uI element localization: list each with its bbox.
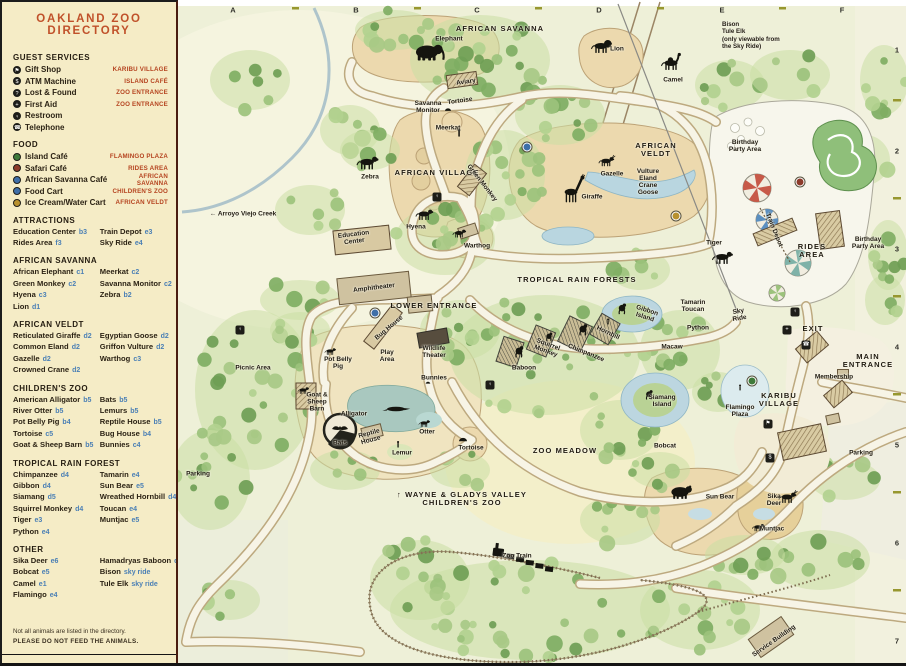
grid-ref: b2	[123, 292, 131, 299]
animal-entry: Pythone4	[13, 527, 100, 538]
animal-grid: Reticulated Giraffed2Egyptian Goosed2Com…	[13, 331, 168, 377]
animal-entry: Batsb5	[100, 395, 168, 406]
section-heading: TROPICAL RAIN FOREST	[13, 459, 168, 468]
animal-name: Hamadryas Baboon	[100, 556, 171, 565]
animal-name: Wreathed Hornbill	[100, 492, 165, 501]
grid-ref: e4	[132, 472, 140, 479]
section-african-veldt: AFRICAN VELDTReticulated Giraffed2Egypti…	[13, 320, 168, 377]
animal-name: Meerkat	[100, 267, 129, 276]
service-location: CHILDREN'S ZOO	[113, 188, 169, 195]
animal-name: Bison	[100, 567, 121, 576]
animal-name: Muntjac	[100, 515, 129, 524]
animal-entry: Green Monkeyc2	[13, 279, 100, 290]
grid-ref: c2	[68, 281, 76, 288]
grid-ref: d2	[84, 333, 92, 340]
animal-entry: Flamingoe4	[13, 590, 100, 601]
animal-entry: Bobcate5	[13, 567, 100, 578]
service-label: Telephone	[25, 123, 64, 132]
animal-entry: American Alligatorb5	[13, 395, 100, 406]
grid-ref: d4	[168, 494, 176, 501]
animal-name: Griffon Vulture	[100, 342, 153, 351]
service-location: ISLAND CAFÉ	[124, 78, 168, 85]
logo-block: CONSERVATION & EDUCATION OAKLAND ZOO	[2, 655, 176, 663]
animal-name: Camel	[13, 579, 36, 588]
animal-entry: Reticulated Giraffed2	[13, 331, 100, 342]
service-location: FLAMINGO PLAZA	[110, 153, 168, 160]
stage	[407, 295, 433, 313]
animal-name: Tamarin	[100, 470, 129, 479]
section-heading: FOOD	[13, 140, 168, 149]
section-children-s-zoo: CHILDREN'S ZOOAmerican Alligatorb5Batsb5…	[13, 384, 168, 452]
food-cart-icon	[13, 187, 21, 195]
animal-name: Bunnies	[100, 440, 130, 449]
section-food: FOODIsland CaféFLAMINGO PLAZASafari Café…	[13, 140, 168, 209]
grid-ref: d2	[43, 356, 51, 363]
animal-name: Zebra	[100, 290, 121, 299]
service-label: Gift Shop	[25, 65, 61, 74]
animal-name: Goat & Sheep Barn	[13, 440, 82, 449]
animal-name: Tule Elk	[100, 579, 129, 588]
animal-entry: Camele1	[13, 579, 100, 590]
directory-note: Not all animals are listed in the direct…	[13, 628, 166, 635]
animal-grid: Education Centerb3Train Depote3Rides Are…	[13, 227, 168, 250]
grid-ref: c3	[133, 356, 141, 363]
grid-ref: d4	[75, 506, 83, 513]
grid-ref: d2	[72, 367, 80, 374]
animal-entry: Lemursb5	[100, 406, 168, 417]
animal-entry: Train Depote3	[100, 227, 168, 238]
service-label: African Savanna Café	[25, 175, 107, 184]
animal-name: Rides Area	[13, 238, 52, 247]
animal-name: Savanna Monitor	[100, 279, 161, 288]
animal-name: Lemurs	[100, 406, 127, 415]
service-row: Food CartCHILDREN'S ZOO	[13, 186, 168, 198]
section-tropical-rain-forest: TROPICAL RAIN FORESTChimpanzeed4Tamarine…	[13, 459, 168, 538]
grid-ref: b5	[130, 408, 138, 415]
section-heading: AFRICAN VELDT	[13, 320, 168, 329]
grid-ref: b5	[119, 397, 127, 404]
animal-entry: Bisonsky ride	[100, 567, 168, 578]
service-row: ?Lost & FoundZOO ENTRANCE	[13, 87, 168, 99]
animal-name: Egyptian Goose	[100, 331, 158, 340]
animal-entry: Squirrel Monkeyd4	[13, 504, 100, 515]
animal-entry: Muntjace5	[100, 515, 168, 526]
goat-sheep-barn	[296, 383, 316, 409]
grid-ref: d4	[43, 483, 51, 490]
flamingo-pond	[721, 365, 769, 417]
animal-name: African Elephant	[13, 267, 73, 276]
service-row: Island CaféFLAMINGO PLAZA	[13, 151, 168, 163]
grid-ref: sky ride	[131, 581, 157, 588]
service-label: Ice Cream/Water Cart	[25, 198, 106, 207]
service-label: ATM Machine	[25, 77, 76, 86]
animal-grid: Chimpanzeed4Tamarine4Gibbond4Sun Beare5S…	[13, 470, 168, 538]
animal-name: Bobcat	[13, 567, 39, 576]
atm-icon: $	[13, 77, 21, 85]
animal-entry: Reptile Houseb5	[100, 417, 168, 428]
animal-name: Green Monkey	[13, 279, 65, 288]
service-row: African Savanna CaféAFRICAN SAVANNA	[13, 174, 168, 186]
animal-entry: Savanna Monitorc2	[100, 279, 168, 290]
membership-building	[838, 370, 849, 379]
animal-name: Toucan	[100, 504, 126, 513]
animal-entry: Crowned Craned2	[13, 365, 100, 376]
service-row: ⚑Gift ShopKARIBU VILLAGE	[13, 64, 168, 76]
grid-ref: d2	[156, 344, 164, 351]
animal-entry: African Elephantc1	[13, 267, 100, 278]
animal-name: Reptile House	[100, 417, 151, 426]
animal-name: Warthog	[100, 354, 131, 363]
animal-entry: Common Elandd2	[13, 342, 100, 353]
grid-ref: c2	[164, 281, 172, 288]
animal-entry: Rides Areaf3	[13, 238, 100, 249]
animal-entry	[100, 527, 168, 538]
service-row: ♀Restroom	[13, 110, 168, 122]
grid-ref: c2	[132, 269, 140, 276]
grid-ref: e3	[145, 229, 153, 236]
grid-ref: e4	[129, 506, 137, 513]
animal-entry: Gazelled2	[13, 354, 100, 365]
service-label: Food Cart	[25, 187, 63, 196]
animal-entry: Sika Deere6	[13, 556, 100, 567]
grid-ref: b4	[62, 419, 70, 426]
grid-ref: b5	[55, 408, 63, 415]
service-location: ZOO ENTRANCE	[116, 89, 168, 96]
section-heading: AFRICAN SAVANNA	[13, 256, 168, 265]
animal-entry: Siamangd5	[13, 492, 100, 503]
animal-entry	[100, 590, 168, 601]
animal-name: Gazelle	[13, 354, 40, 363]
animal-name: Bats	[100, 395, 116, 404]
service-location: RIDES AREA	[128, 165, 168, 172]
service-location: AFRICAN VELDT	[116, 199, 168, 206]
animal-entry: Tamarine4	[100, 470, 168, 481]
animal-name: Lion	[13, 302, 29, 311]
animal-name: Tiger	[13, 515, 31, 524]
grid-ref: d5	[48, 494, 56, 501]
african-savanna-cafe-icon	[13, 176, 21, 184]
directory-panel: OAKLAND ZOO DIRECTORY GUEST SERVICES⚑Gif…	[0, 0, 178, 663]
grid-ref: b4	[143, 431, 151, 438]
animal-name: Bug House	[100, 429, 140, 438]
grid-ref: e3	[34, 517, 42, 524]
service-row: +First AidZOO ENTRANCE	[13, 99, 168, 111]
service-location: KARIBU VILLAGE	[113, 66, 168, 73]
telephone-icon: ☎	[13, 123, 21, 131]
animal-name: Pot Belly Pig	[13, 417, 59, 426]
animal-entry: Chimpanzeed4	[13, 470, 100, 481]
animal-entry: Toucane4	[100, 504, 168, 515]
grid-ref: c5	[45, 431, 53, 438]
restroom-icon: ♀	[13, 112, 21, 120]
section-african-savanna: AFRICAN SAVANNAAfrican Elephantc1Meerkat…	[13, 256, 168, 313]
grid-ref: b5	[153, 419, 161, 426]
service-location: ZOO ENTRANCE	[116, 101, 168, 108]
grid-ref: c3	[39, 292, 47, 299]
directory-sections: GUEST SERVICES⚑Gift ShopKARIBU VILLAGE$A…	[2, 44, 176, 602]
section-guest-services: GUEST SERVICES⚑Gift ShopKARIBU VILLAGE$A…	[13, 53, 168, 133]
animal-grid: Sika Deere6Hamadryas Baboonc4Bobcate5Bis…	[13, 556, 168, 602]
animal-entry: Hyenac3	[13, 290, 100, 301]
animal-name: Reticulated Giraffe	[13, 331, 81, 340]
service-row: $ATM MachineISLAND CAFÉ	[13, 76, 168, 88]
animal-name: Flamingo	[13, 590, 47, 599]
animal-name: Sun Bear	[100, 481, 133, 490]
section-heading: ATTRACTIONS	[13, 216, 168, 225]
grid-ref: sky ride	[124, 569, 150, 576]
animal-entry: Warthogc3	[100, 354, 168, 365]
animal-entry: Pot Belly Pigb4	[13, 417, 100, 428]
animal-entry: River Otterb5	[13, 406, 100, 417]
logo-tagline: CONSERVATION & EDUCATION	[13, 661, 166, 663]
animal-entry	[100, 302, 168, 313]
grid-ref: e1	[39, 581, 47, 588]
service-row: Ice Cream/Water CartAFRICAN VELDT	[13, 197, 168, 209]
service-label: First Aid	[25, 100, 57, 109]
animal-name: Crowned Crane	[13, 365, 69, 374]
ice-cream-cart-icon	[13, 199, 21, 207]
grid-ref: e5	[136, 483, 144, 490]
animal-entry: Bunniesc4	[100, 440, 168, 451]
animal-name: Siamang	[13, 492, 45, 501]
grid-ref: c4	[174, 558, 178, 565]
animal-name: Education Center	[13, 227, 76, 236]
directory-warning: PLEASE DO NOT FEED THE ANIMALS.	[13, 638, 166, 645]
service-label: Lost & Found	[25, 88, 77, 97]
animal-entry: Egyptian Goosed2	[100, 331, 168, 342]
grid-ref: b5	[85, 442, 93, 449]
section-other: OTHERSika Deere6Hamadryas Baboonc4Bobcat…	[13, 545, 168, 602]
animal-entry: Hamadryas Baboonc4	[100, 556, 168, 567]
grid-ref: b3	[79, 229, 87, 236]
animal-name: Sky Ride	[100, 238, 132, 247]
animal-grid: American Alligatorb5Batsb5River Otterb5L…	[13, 395, 168, 452]
animal-name: Sika Deer	[13, 556, 48, 565]
animal-name: Train Depot	[100, 227, 142, 236]
grid-ref: e4	[42, 529, 50, 536]
grid-ref: c1	[76, 269, 84, 276]
animal-name: Hyena	[13, 290, 36, 299]
gift-shop-icon: ⚑	[13, 66, 21, 74]
animal-name: Python	[13, 527, 39, 536]
animal-entry: Zebrab2	[100, 290, 168, 301]
animal-entry	[100, 365, 168, 376]
lost-found-icon: ?	[13, 89, 21, 97]
animal-entry: Gibbond4	[13, 481, 100, 492]
animal-name: Chimpanzee	[13, 470, 58, 479]
animal-name: Tortoise	[13, 429, 42, 438]
section-heading: GUEST SERVICES	[13, 53, 168, 62]
animal-entry: Wreathed Hornbilld4	[100, 492, 168, 503]
animal-entry: Sun Beare5	[100, 481, 168, 492]
grid-ref: d1	[32, 304, 40, 311]
island-cafe-icon	[13, 153, 21, 161]
animal-name: Common Eland	[13, 342, 69, 351]
grid-ref: d2	[72, 344, 80, 351]
service-label: Restroom	[25, 111, 62, 120]
animal-name: Squirrel Monkey	[13, 504, 72, 513]
service-label: Safari Café	[25, 164, 67, 173]
animal-entry: Griffon Vultured2	[100, 342, 168, 353]
safari-cafe-icon	[13, 164, 21, 172]
grid-ref: e4	[135, 240, 143, 247]
animal-entry: Meerkatc2	[100, 267, 168, 278]
animal-entry: Tule Elksky ride	[100, 579, 168, 590]
section-heading: OTHER	[13, 545, 168, 554]
zoo-map-page: AFRICAN SAVANNAElephantLionCamelBison Tu…	[0, 0, 906, 666]
otter-pool	[416, 412, 442, 428]
animal-entry: Goat & Sheep Barnb5	[13, 440, 100, 451]
first-aid-icon: +	[13, 100, 21, 108]
animal-entry: Tortoisec5	[13, 429, 100, 440]
section-attractions: ATTRACTIONSEducation Centerb3Train Depot…	[13, 216, 168, 250]
directory-notes: Not all animals are listed in the direct…	[2, 628, 176, 645]
animal-name: American Alligator	[13, 395, 80, 404]
grid-ref: d2	[161, 333, 169, 340]
grid-ref: e5	[42, 569, 50, 576]
animal-name: Gibbon	[13, 481, 40, 490]
animal-entry: Bug Houseb4	[100, 429, 168, 440]
party-pavilion	[816, 211, 845, 250]
grid-ref: d4	[61, 472, 69, 479]
service-row: ☎Telephone	[13, 122, 168, 134]
animal-entry: Liond1	[13, 302, 100, 313]
animal-entry: Education Centerb3	[13, 227, 100, 238]
education-center	[333, 225, 391, 255]
animal-name: River Otter	[13, 406, 52, 415]
service-label: Island Café	[25, 152, 68, 161]
grid-ref: e5	[132, 517, 140, 524]
service-location: AFRICAN SAVANNA	[107, 173, 168, 187]
grid-ref: e6	[51, 558, 59, 565]
grid-ref: e4	[50, 592, 58, 599]
grid-ref: b5	[83, 397, 91, 404]
grid-ref: c4	[133, 442, 141, 449]
section-heading: CHILDREN'S ZOO	[13, 384, 168, 393]
animal-entry: Sky Ridee4	[100, 238, 168, 249]
grid-ref: f3	[55, 240, 61, 247]
directory-title: OAKLAND ZOO DIRECTORY	[2, 2, 176, 44]
animal-grid: African Elephantc1Meerkatc2Green Monkeyc…	[13, 267, 168, 313]
animal-entry: Tigere3	[13, 515, 100, 526]
